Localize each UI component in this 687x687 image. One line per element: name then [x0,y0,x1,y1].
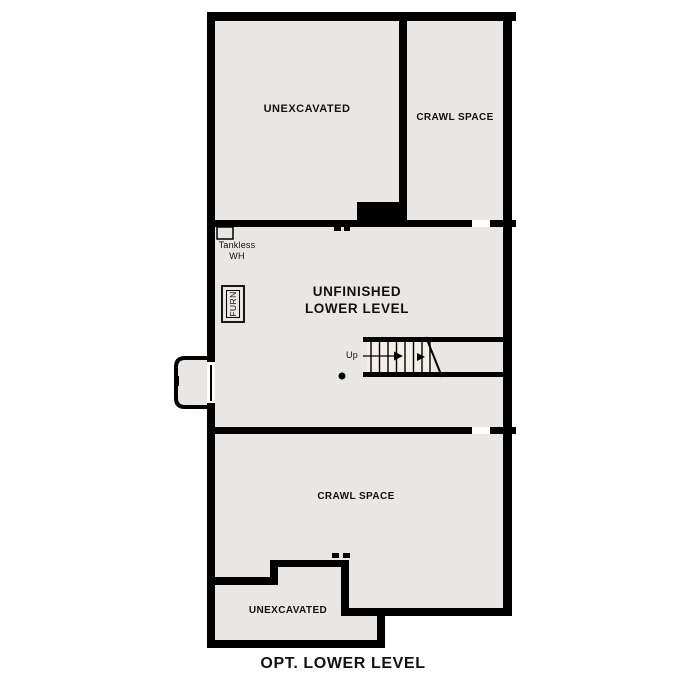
tick-mark [344,227,350,231]
tankless-line1: Tankless [208,240,266,251]
unexcavated-divider-wall [341,560,349,616]
up-label: Up [342,350,362,361]
mid-cross-wall [207,427,516,434]
furnace-label: FURN [228,291,238,317]
crawl-bottom-wall [341,608,512,616]
window-well-fill [178,360,212,406]
window-gap-upper [472,220,490,227]
stair-top-wall [363,337,503,342]
unfinished-line1: UNFINISHED [277,283,437,300]
support-post-dot [339,373,346,380]
plan-title: OPT. LOWER LEVEL [243,655,443,673]
room-label-unexcavated-bottom: UNEXCAVATED [238,605,338,616]
window-gap-mid [472,427,490,434]
tankless-line2: WH [208,251,266,262]
tick-mark [334,227,341,231]
floorplan-canvas: UNEXCAVATED CRAWL SPACE UNFINISHED LOWER… [0,0,687,687]
step-wall-upper [270,560,349,567]
left-window-line [210,365,212,401]
room-label-unexcavated-top: UNEXCAVATED [215,103,399,115]
upper-cross-wall [207,220,516,227]
unfinished-line2: LOWER LEVEL [277,300,437,317]
tick-mark [343,553,350,558]
stair-bottom-wall [363,372,503,377]
furnace-label-box: FURN [222,286,244,322]
tick-mark [332,553,339,558]
top-wall [207,12,516,21]
room-label-crawl-space-bottom: CRAWL SPACE [306,491,406,502]
room-label-crawl-space-top: CRAWL SPACE [405,112,505,123]
step-wall-left [207,577,277,585]
tankless-wh-label: Tankless WH [208,240,266,261]
window-well-tick [175,376,179,386]
room-label-unfinished-lower-level: UNFINISHED LOWER LEVEL [277,283,437,317]
left-wall [207,12,215,648]
right-wall [503,12,512,616]
unexcavated-bottom-wall [207,640,385,648]
